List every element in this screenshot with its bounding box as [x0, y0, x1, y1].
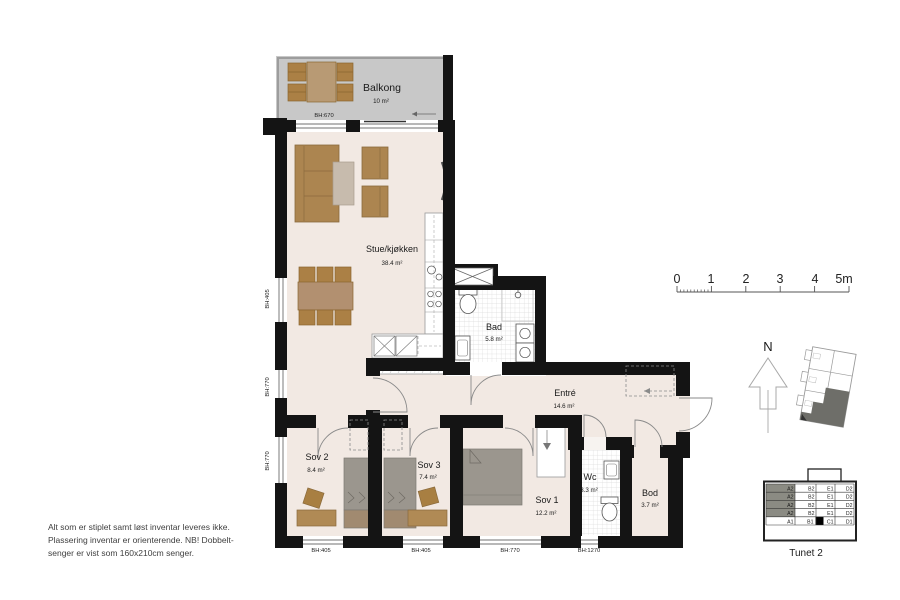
dining-chair	[299, 310, 315, 325]
door-opening-living	[366, 376, 380, 410]
wc-toilet-tank	[601, 497, 618, 504]
room-label-entre: Entré	[554, 388, 576, 398]
unit-cell-r1c2: E1	[827, 495, 833, 501]
room-area-sov1: 12.2 m²	[536, 510, 557, 517]
window-label-bottom-4: BH:1270	[578, 548, 601, 554]
desk-sov2	[297, 510, 336, 526]
scale-label-0: 0	[674, 272, 681, 286]
unit-cell-r2c0: A2	[787, 503, 793, 509]
unit-cell-r3c1: B2	[808, 511, 814, 517]
door-opening-sov2	[316, 415, 348, 428]
dining-chair	[317, 267, 333, 283]
floorplan-canvas: Balkong 10 m² Stue/kjøkken 38.4 m² Bad 5…	[0, 0, 900, 600]
bed-sov1	[463, 449, 522, 505]
room-area-bod: 3.7 m²	[641, 502, 659, 509]
door-opening-sov3	[408, 415, 440, 428]
unit-cell-r4c0: A1	[787, 519, 793, 525]
building-diagram: A2 B2 E1 D2 A2 B2 E1 D2 A2 B2 E1 D2 A2 B…	[764, 469, 856, 559]
unit-cell-r3c2: E1	[827, 511, 833, 517]
balcony-table	[307, 62, 336, 102]
window-label-left-3: BH:770	[265, 451, 271, 470]
window-left-2	[275, 370, 287, 398]
unit-cell-r4c2: C1	[827, 519, 834, 525]
window-left-3	[275, 437, 287, 483]
armchair	[362, 147, 388, 179]
unit-cell-r2c2: E1	[827, 503, 833, 509]
dining-table	[298, 282, 353, 310]
site-tiny-label-box	[804, 400, 812, 406]
door-opening-entry	[676, 396, 690, 432]
washer	[516, 324, 534, 343]
window-label-bottom-2: BH:405	[411, 548, 430, 554]
room-label-sov2: Sov 2	[305, 452, 328, 462]
room-area-stue: 38.4 m²	[382, 260, 403, 267]
room-area-entre: 14.6 m²	[554, 403, 575, 410]
unit-cell-r1c0: A2	[787, 495, 793, 501]
scale-label-2: 2	[743, 272, 750, 286]
room-label-sov1: Sov 1	[535, 495, 558, 505]
room-area-balkong: 10 m²	[373, 98, 389, 105]
site-balcony-notch	[796, 395, 804, 406]
kitchen-counter-bottom	[372, 334, 443, 358]
unit-cell-r0c1: B2	[808, 487, 814, 493]
unit-cell-r4c3: D1	[846, 519, 853, 525]
room-area-bad: 5.8 m²	[485, 336, 503, 343]
wc-toilet-bowl	[602, 503, 617, 521]
note-line-3: senger er vist som 160x210cm senger.	[48, 548, 194, 558]
dining-set	[298, 267, 353, 325]
diagram-title: Tunet 2	[789, 548, 823, 559]
door-opening-bad	[470, 362, 502, 375]
sofa	[295, 145, 339, 222]
room-label-wc: Wc	[584, 472, 597, 482]
site-tiny-label-box	[809, 377, 817, 383]
balcony-chair	[337, 84, 353, 101]
unit-cell-r1c1: B2	[808, 495, 814, 501]
toilet-bowl	[460, 295, 476, 314]
scale-bar: 0 1 2 3 4 5m	[674, 272, 853, 292]
note-line-2: Plassering inventar er orienterende. NB!…	[48, 535, 234, 545]
desk-sov3	[408, 510, 447, 526]
balcony-chair	[288, 84, 306, 101]
site-balcony-notch	[801, 371, 809, 382]
scale-label-4: 4	[812, 272, 819, 286]
floorplan-page: Balkong 10 m² Stue/kjøkken 38.4 m² Bad 5…	[0, 0, 900, 600]
window-label-left-1: BH:405	[265, 289, 271, 308]
room-label-bod: Bod	[642, 488, 658, 498]
unit-cell-r2c1: B2	[808, 503, 814, 509]
scale-label-1: 1	[708, 272, 715, 286]
dining-chair	[335, 310, 351, 325]
north-compass: N	[749, 339, 787, 433]
site-map	[794, 346, 856, 428]
dryer	[516, 343, 534, 362]
room-label-sov3: Sov 3	[417, 460, 440, 470]
wardrobe-sov1	[537, 424, 565, 477]
unit-cell-r0c2: E1	[827, 487, 833, 493]
scale-label-3: 3	[777, 272, 784, 286]
room-area-wc: 3.3 m²	[580, 487, 598, 494]
window-left-1	[275, 278, 287, 322]
window-label-bottom-1: BH:405	[311, 548, 330, 554]
diagram-roof-box	[808, 469, 841, 482]
unit-cell-r2c3: D2	[846, 503, 853, 509]
window-bottom-1	[303, 536, 343, 548]
armchair	[362, 186, 388, 217]
dining-chair	[299, 267, 315, 283]
window-label-balcony: BH:670	[314, 113, 333, 119]
unit-cell-r3c3: D2	[846, 511, 853, 517]
window-balcony	[296, 120, 346, 132]
window-label-bottom-3: BH:770	[500, 548, 519, 554]
scale-labels: 0 1 2 3 4 5m	[674, 272, 853, 286]
coffee-table	[333, 162, 354, 205]
room-area-sov3: 7.4 m²	[419, 474, 437, 481]
room-area-sov2: 8.4 m²	[307, 467, 325, 474]
door-opening-sov1	[503, 415, 535, 428]
site-balcony-notch	[804, 350, 812, 361]
disclaimer-note: Alt som er stiplet samt løst inventar le…	[48, 522, 234, 558]
unit-cell-r4c1: B1	[807, 519, 813, 525]
room-label-balkong: Balkong	[363, 82, 401, 94]
door-opening-wc	[584, 437, 606, 450]
diagram-unit-marker	[816, 517, 824, 525]
scale-major-ticks	[677, 286, 849, 292]
dining-chair	[317, 310, 333, 325]
unit-cell-r0c0: A2	[787, 487, 793, 493]
unit-cell-r3c0: A2	[787, 511, 793, 517]
window-label-left-2: BH:770	[265, 377, 271, 396]
dining-chair	[335, 267, 351, 283]
unit-cell-r0c3: D2	[846, 487, 853, 493]
site-tiny-label-box	[813, 353, 821, 359]
window-bottom-3	[480, 536, 541, 548]
note-line-1: Alt som er stiplet samt løst inventar le…	[48, 522, 230, 532]
room-label-stue: Stue/kjøkken	[366, 244, 418, 254]
scale-label-5m: 5m	[835, 272, 852, 286]
north-label: N	[763, 339, 772, 354]
unit-cell-r1c3: D2	[846, 495, 853, 501]
door-opening-bod	[634, 445, 660, 458]
window-bottom-2	[403, 536, 443, 548]
room-label-bad: Bad	[486, 322, 502, 332]
window-bottom-4	[581, 536, 598, 548]
